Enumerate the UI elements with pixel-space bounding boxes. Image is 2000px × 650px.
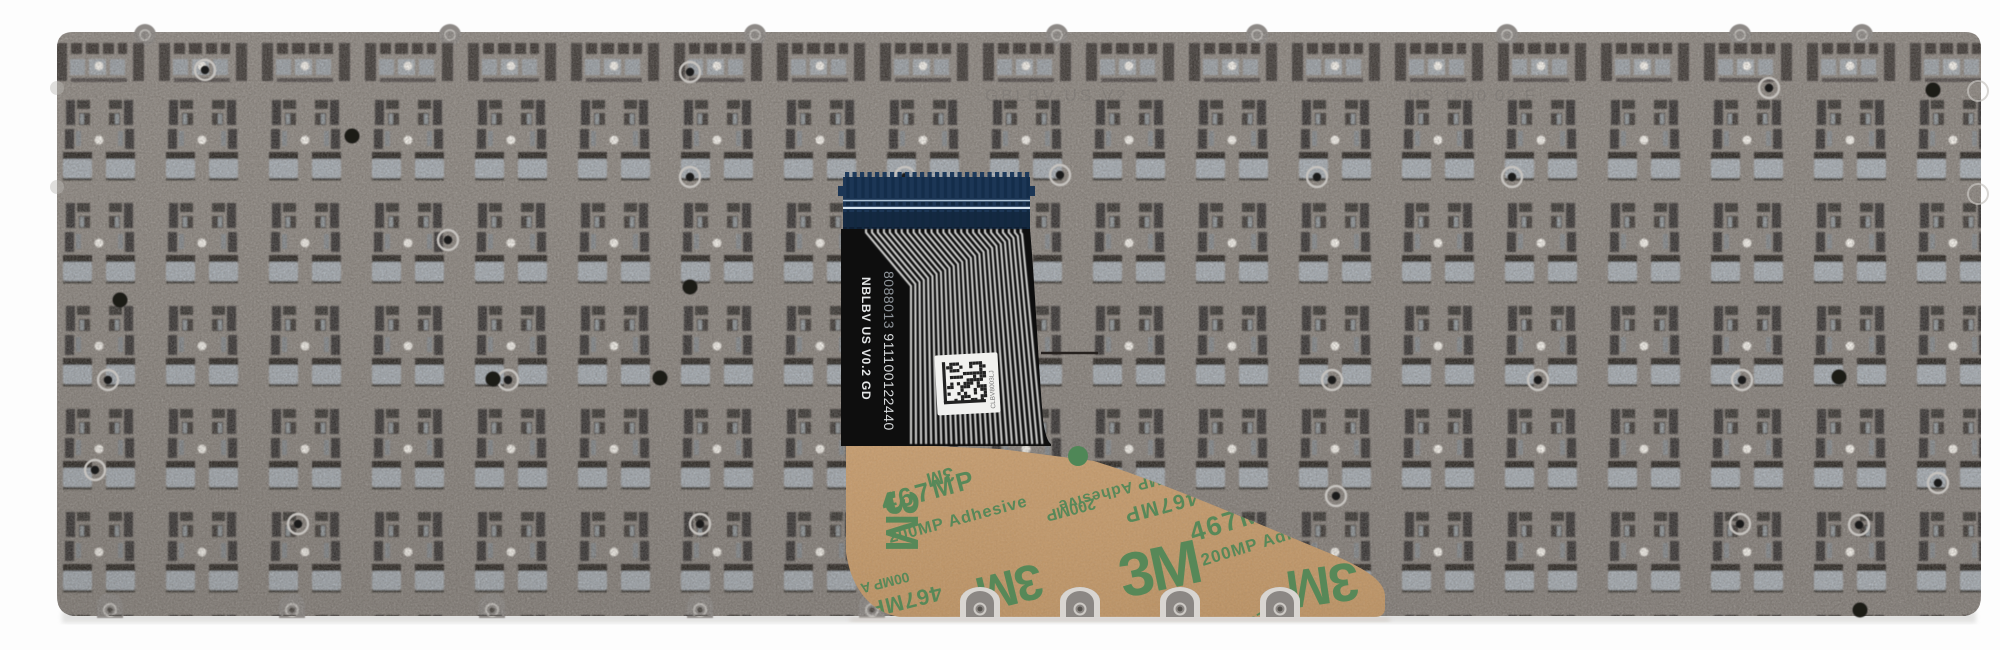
- svg-text:NBLBV US V0.2 GD: NBLBV US V0.2 GD: [859, 277, 873, 401]
- svg-text:8088013 911100122440: 8088013 911100122440: [881, 271, 897, 431]
- svg-text:HS 1800 02 F: HS 1800 02 F: [1408, 86, 1537, 105]
- svg-text:GBLBV-US V2: GBLBV-US V2: [985, 86, 1129, 105]
